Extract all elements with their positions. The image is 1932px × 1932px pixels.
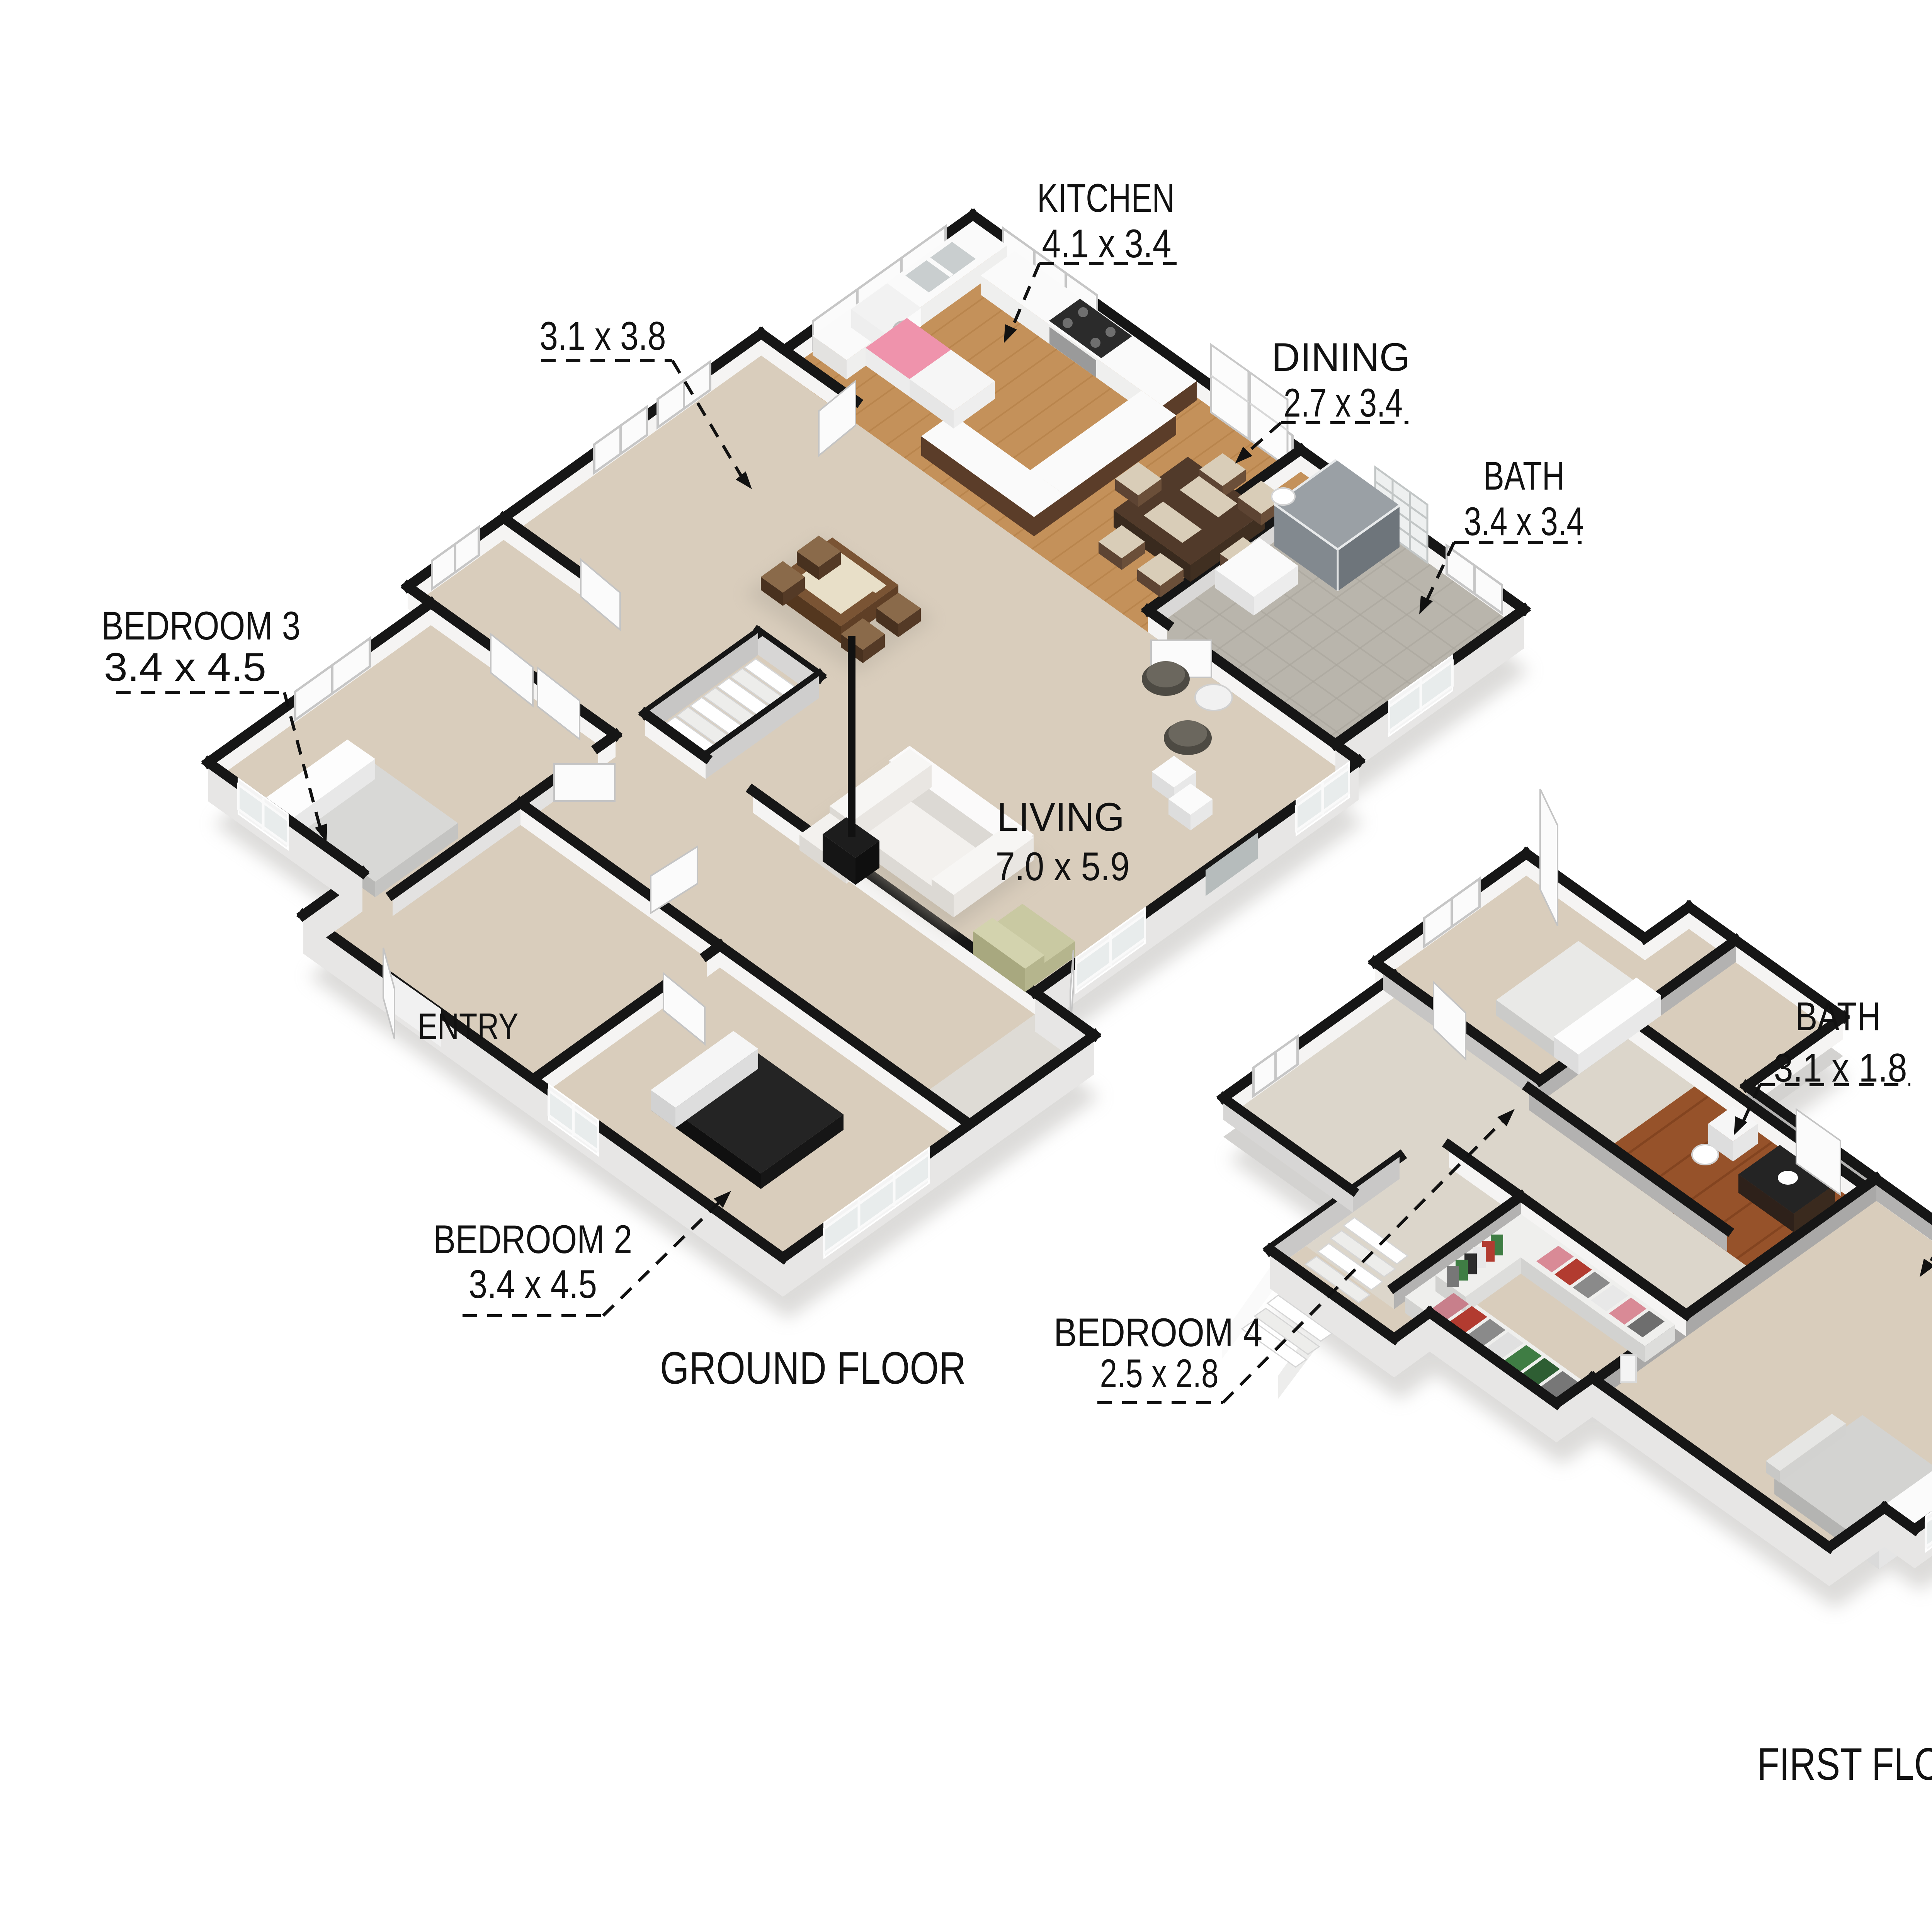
- svg-text:2.7 x 3.4: 2.7 x 3.4: [1284, 381, 1403, 425]
- svg-text:2.5 x 2.8: 2.5 x 2.8: [1100, 1351, 1219, 1396]
- svg-text:3.4 x 4.5: 3.4 x 4.5: [104, 645, 266, 690]
- svg-text:GROUND FLOOR: GROUND FLOOR: [660, 1343, 966, 1394]
- svg-text:BEDROOM 3: BEDROOM 3: [102, 604, 301, 648]
- svg-text:FIRST FLOOR: FIRST FLOOR: [1757, 1739, 1932, 1790]
- svg-text:LIVING: LIVING: [997, 795, 1124, 840]
- svg-text:DINING: DINING: [1272, 335, 1410, 380]
- svg-text:ENTRY: ENTRY: [418, 1006, 519, 1047]
- svg-text:3.1 x 3.8: 3.1 x 3.8: [540, 314, 666, 359]
- svg-text:BEDROOM 4: BEDROOM 4: [1054, 1310, 1262, 1355]
- svg-text:3.4 x 4.5: 3.4 x 4.5: [469, 1262, 597, 1307]
- svg-text:BEDROOM 2: BEDROOM 2: [434, 1217, 632, 1262]
- svg-text:KITCHEN: KITCHEN: [1037, 176, 1175, 221]
- svg-text:4.1 x 3.4: 4.1 x 3.4: [1042, 221, 1172, 266]
- svg-text:7.0 x 5.9: 7.0 x 5.9: [996, 844, 1130, 889]
- svg-text:BATH: BATH: [1483, 454, 1565, 498]
- svg-text:BATH: BATH: [1796, 994, 1881, 1039]
- svg-text:3.4 x 3.4: 3.4 x 3.4: [1464, 499, 1584, 544]
